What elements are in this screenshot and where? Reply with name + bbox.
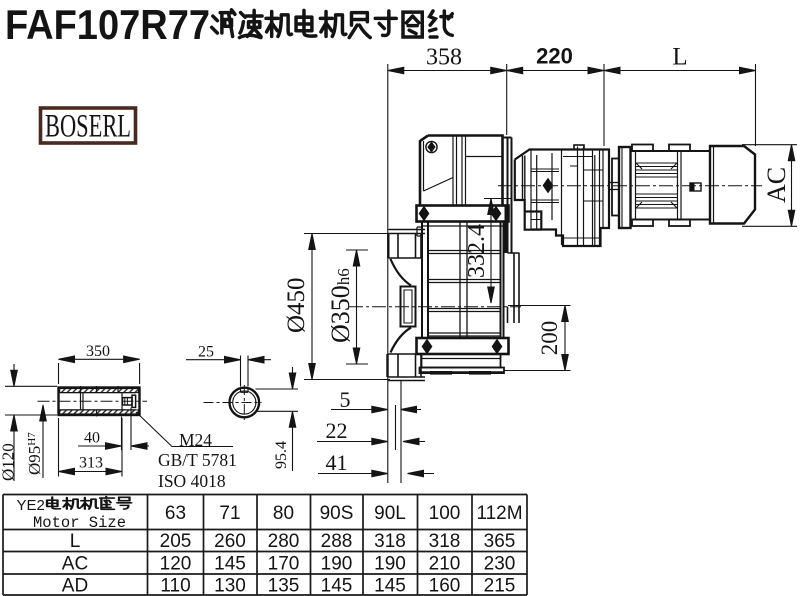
svg-text:145: 145 bbox=[374, 576, 406, 596]
svg-text:M24: M24 bbox=[179, 430, 212, 450]
svg-text:135: 135 bbox=[268, 576, 300, 596]
svg-text:365: 365 bbox=[484, 531, 516, 552]
svg-text:40: 40 bbox=[84, 430, 100, 447]
svg-text:318: 318 bbox=[429, 531, 461, 552]
svg-text:288: 288 bbox=[321, 531, 353, 552]
svg-text:318: 318 bbox=[374, 531, 406, 552]
svg-text:90L: 90L bbox=[374, 503, 406, 524]
svg-text:280: 280 bbox=[268, 531, 300, 552]
svg-text:215: 215 bbox=[484, 576, 516, 596]
svg-text:145: 145 bbox=[214, 554, 246, 575]
svg-text:Ø450: Ø450 bbox=[283, 277, 310, 333]
svg-text:FAF107R77: FAF107R77 bbox=[5, 1, 210, 48]
svg-text:210: 210 bbox=[429, 554, 461, 575]
svg-text:145: 145 bbox=[321, 576, 353, 596]
svg-text:130: 130 bbox=[214, 576, 246, 596]
svg-text:350: 350 bbox=[86, 343, 110, 360]
svg-text:YE2: YE2 bbox=[17, 497, 45, 514]
svg-text:200: 200 bbox=[537, 321, 562, 356]
svg-text:L: L bbox=[672, 44, 687, 71]
svg-text:220: 220 bbox=[536, 44, 573, 69]
svg-text:100: 100 bbox=[429, 503, 461, 524]
svg-text:5: 5 bbox=[340, 387, 351, 412]
svg-text:90S: 90S bbox=[320, 503, 354, 524]
svg-text:110: 110 bbox=[160, 576, 190, 596]
svg-text:Ø120: Ø120 bbox=[0, 443, 18, 481]
svg-text:332.4: 332.4 bbox=[464, 224, 490, 278]
svg-text:GB/T 5781: GB/T 5781 bbox=[158, 450, 237, 470]
svg-text:80: 80 bbox=[273, 503, 294, 524]
svg-text:22: 22 bbox=[326, 418, 348, 443]
svg-text:BOSERL: BOSERL bbox=[45, 109, 131, 145]
svg-text:ISO 4018: ISO 4018 bbox=[158, 471, 226, 491]
svg-text:190: 190 bbox=[321, 554, 353, 575]
svg-text:120: 120 bbox=[160, 554, 192, 575]
svg-text:358: 358 bbox=[426, 45, 462, 71]
svg-text:AC: AC bbox=[62, 554, 88, 575]
svg-text:205: 205 bbox=[160, 531, 192, 552]
svg-text:AD: AD bbox=[62, 576, 88, 596]
svg-text:190: 190 bbox=[374, 554, 406, 575]
svg-text:95.4: 95.4 bbox=[273, 441, 290, 469]
svg-text:170: 170 bbox=[268, 554, 300, 575]
svg-text:41: 41 bbox=[326, 450, 348, 475]
svg-text:L: L bbox=[70, 531, 81, 552]
svg-text:AC: AC bbox=[762, 167, 791, 203]
svg-text:63: 63 bbox=[165, 503, 186, 524]
svg-text:313: 313 bbox=[79, 455, 103, 472]
svg-text:25: 25 bbox=[198, 344, 214, 361]
svg-text:Motor Size: Motor Size bbox=[33, 514, 126, 532]
svg-text:260: 260 bbox=[214, 531, 246, 552]
svg-text:160: 160 bbox=[429, 576, 461, 596]
svg-text:112M: 112M bbox=[476, 503, 522, 524]
svg-text:71: 71 bbox=[219, 503, 240, 524]
svg-text:230: 230 bbox=[484, 554, 516, 575]
